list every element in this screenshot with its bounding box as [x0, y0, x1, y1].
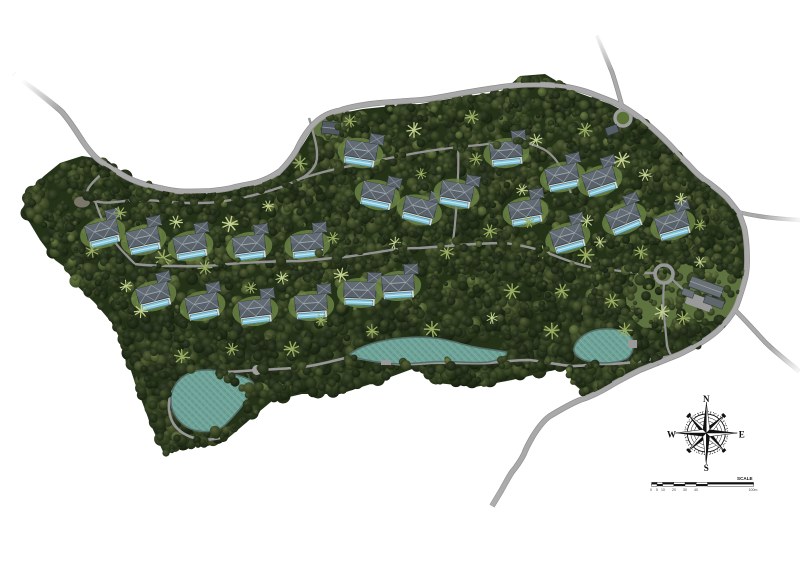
svg-text:100m: 100m: [749, 488, 758, 492]
svg-text:40: 40: [694, 488, 698, 492]
svg-text:S: S: [704, 463, 709, 473]
svg-text:W: W: [667, 430, 676, 440]
svg-text:20: 20: [672, 488, 676, 492]
svg-text:10: 10: [661, 488, 665, 492]
svg-text:N: N: [703, 394, 710, 404]
svg-text:0: 0: [650, 488, 652, 492]
svg-text:5: 5: [656, 488, 658, 492]
svg-text:E: E: [739, 430, 745, 440]
svg-text:30: 30: [683, 488, 687, 492]
svg-text:SCALE: SCALE: [737, 476, 753, 481]
